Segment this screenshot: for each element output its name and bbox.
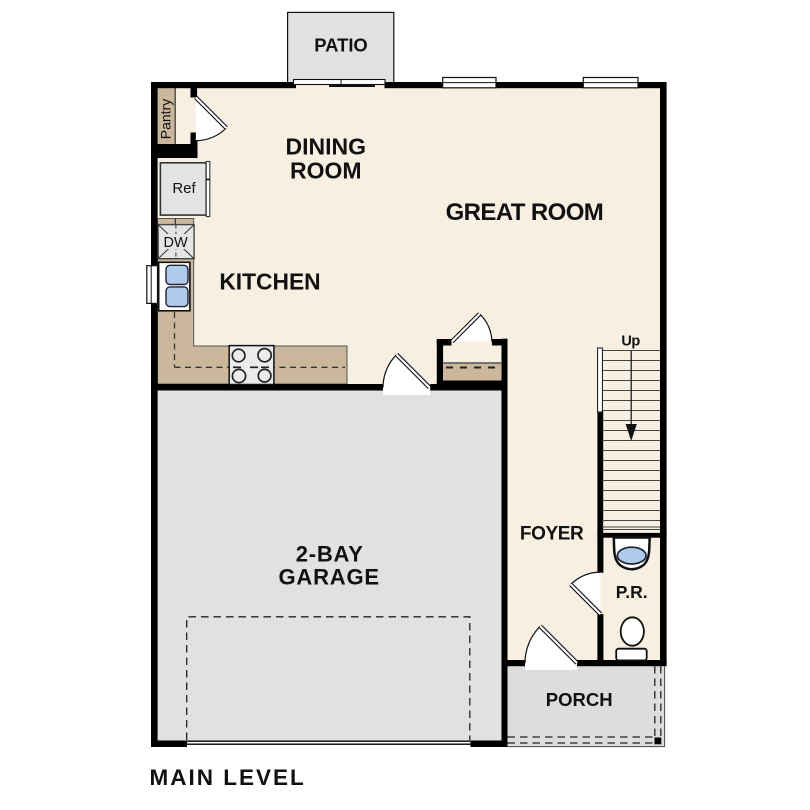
svg-text:KITCHEN: KITCHEN xyxy=(219,268,320,294)
svg-text:Pantry: Pantry xyxy=(157,99,173,139)
svg-text:GREAT ROOM: GREAT ROOM xyxy=(446,199,604,226)
svg-text:Up: Up xyxy=(621,334,640,350)
svg-text:GARAGE: GARAGE xyxy=(279,564,380,589)
svg-text:PATIO: PATIO xyxy=(314,35,367,56)
svg-text:DW: DW xyxy=(164,235,188,251)
svg-text:MAIN LEVEL: MAIN LEVEL xyxy=(150,765,306,790)
svg-text:DINING: DINING xyxy=(286,133,367,159)
svg-text:PORCH: PORCH xyxy=(546,689,613,710)
svg-text:ROOM: ROOM xyxy=(290,157,362,183)
svg-text:P.R.: P.R. xyxy=(616,582,648,602)
svg-text:FOYER: FOYER xyxy=(520,524,584,545)
svg-text:2-BAY: 2-BAY xyxy=(296,542,364,567)
svg-text:Ref: Ref xyxy=(172,180,196,197)
